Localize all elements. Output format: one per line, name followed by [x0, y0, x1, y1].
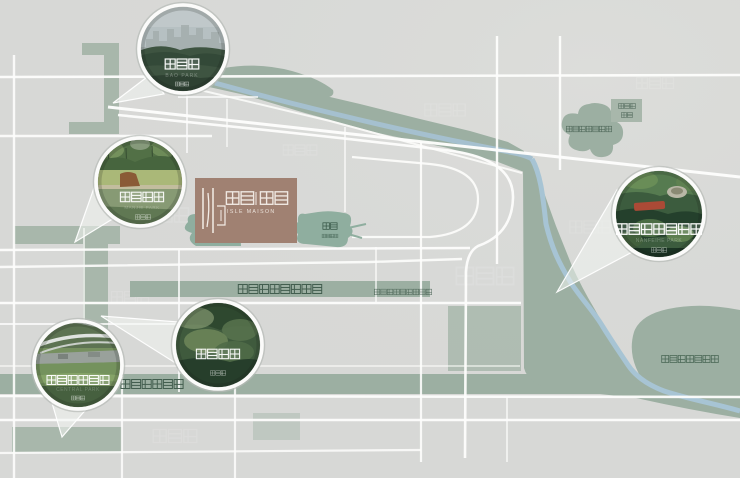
- svg-text:BAO PARK: BAO PARK: [165, 73, 198, 79]
- svg-text:ISLE MAISON: ISLE MAISON: [227, 209, 276, 215]
- svg-text:CENTRAL PARK: CENTRAL PARK: [56, 387, 100, 393]
- svg-text:MANJIE PARK: MANJIE PARK: [124, 205, 159, 210]
- svg-text:NANFEIHE PARK: NANFEIHE PARK: [636, 238, 683, 244]
